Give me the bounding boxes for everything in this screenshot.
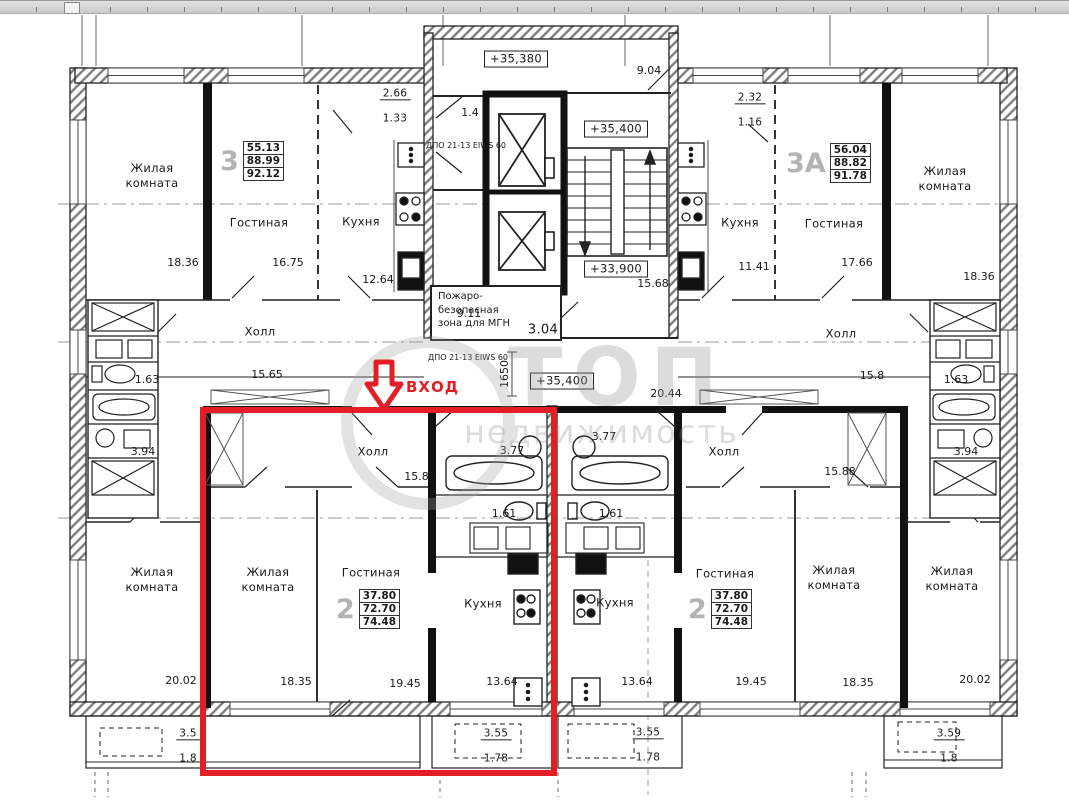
entrance-arrow (0, 0, 1069, 805)
floor-plan-viewer: 3 55.13 88.99 92.12 Жилая комната 18.36 … (0, 0, 1069, 805)
entrance-label: ВХОД (406, 378, 459, 396)
